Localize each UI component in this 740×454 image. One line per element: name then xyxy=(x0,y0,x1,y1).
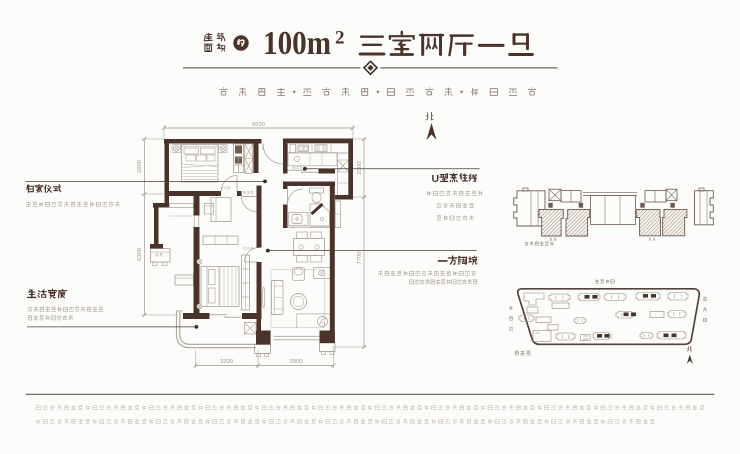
svg-text:2300: 2300 xyxy=(357,162,363,175)
svg-text:U: U xyxy=(432,173,440,185)
svg-text:7700: 7700 xyxy=(357,252,363,265)
svg-text:2800: 2800 xyxy=(137,160,143,173)
svg-text:3900: 3900 xyxy=(290,359,303,365)
svg-text:2: 2 xyxy=(335,28,345,49)
svg-text:100m: 100m xyxy=(263,25,331,62)
svg-text:9500: 9500 xyxy=(252,122,265,128)
svg-text:6300: 6300 xyxy=(137,248,143,261)
svg-text:3200: 3200 xyxy=(220,359,233,365)
